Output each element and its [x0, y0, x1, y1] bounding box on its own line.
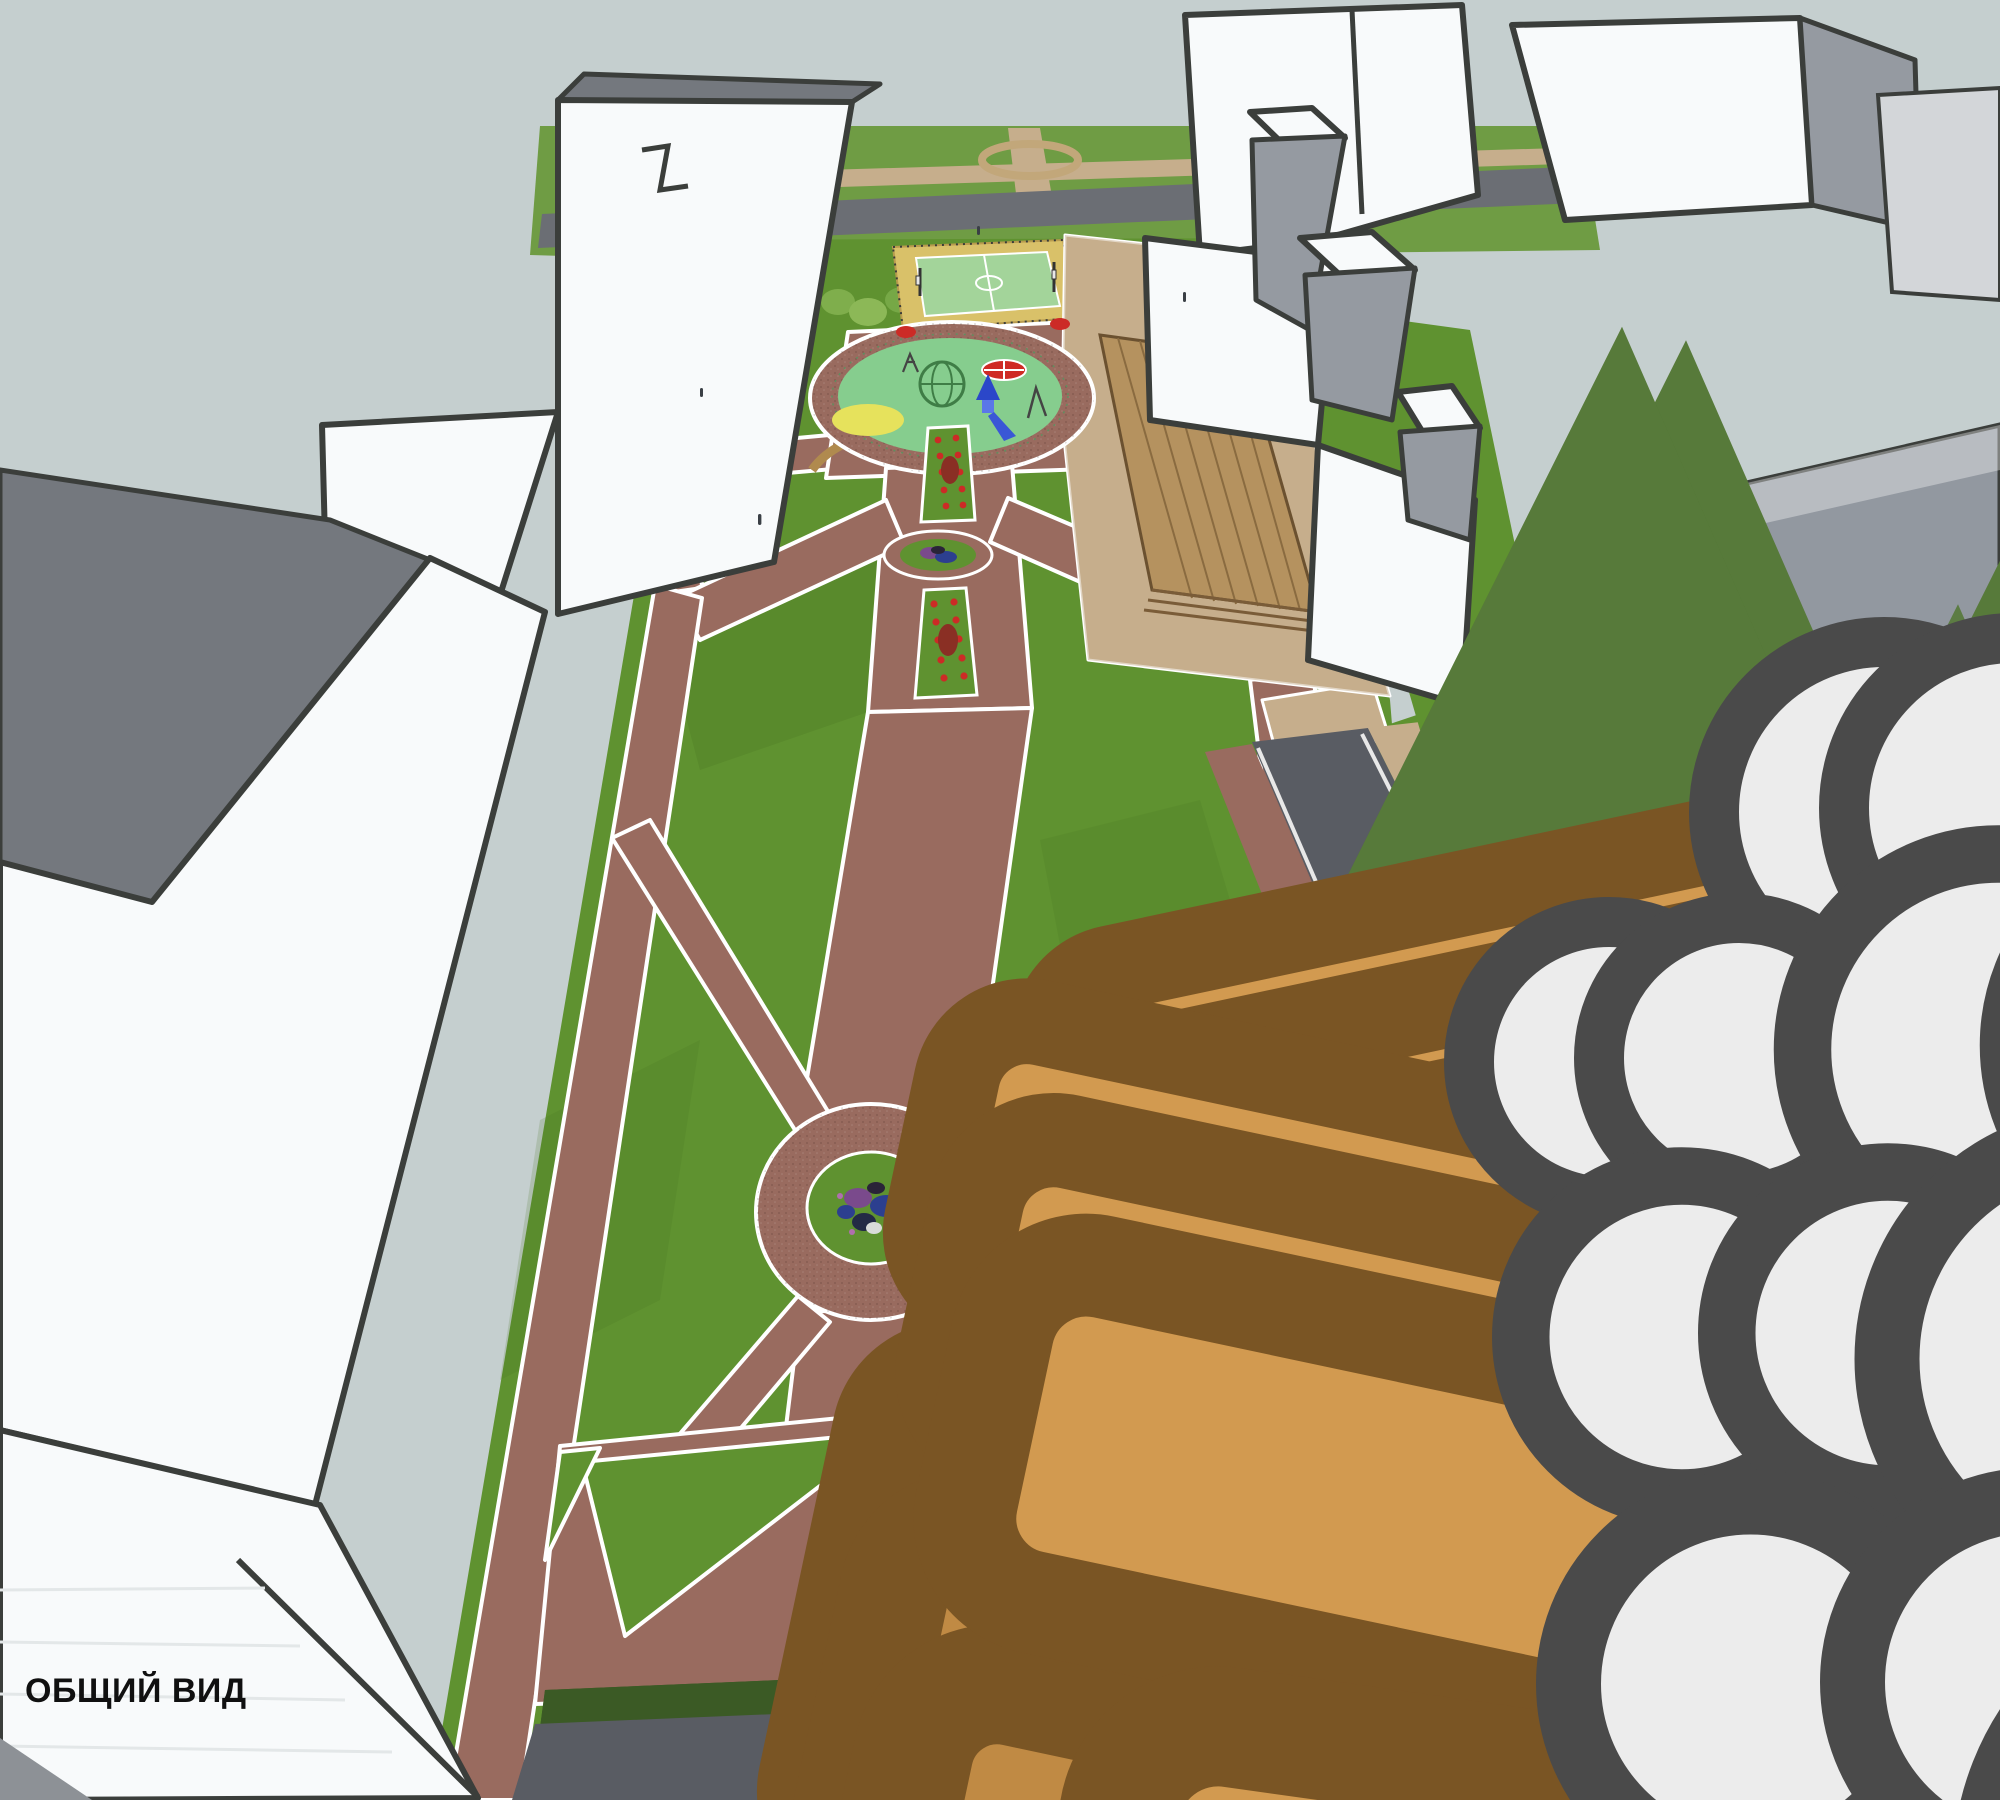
flowerbed — [1050, 318, 1070, 330]
right-building-far — [1512, 18, 1812, 220]
caption-line-1: ОБЩИЙ ВИД — [25, 1664, 499, 1718]
right-building-edge — [1878, 88, 2000, 300]
rose-bush — [938, 624, 958, 656]
render-canvas — [0, 0, 2000, 1800]
flowerbed — [896, 326, 916, 338]
rose-bush — [941, 456, 959, 484]
basketball-court — [893, 240, 1078, 330]
architectural-render: ОБЩИЙ ВИД НА БЛАГОУСТРАИВАЕМУЮ ТЕРРИТОРИ… — [0, 0, 2000, 1800]
sand-pit — [832, 404, 904, 436]
caption: ОБЩИЙ ВИД НА БЛАГОУСТРАИВАЕМУЮ ТЕРРИТОРИ… — [25, 1556, 499, 1800]
chain-wall-c — [1400, 426, 1480, 540]
slide-tower — [982, 400, 994, 413]
